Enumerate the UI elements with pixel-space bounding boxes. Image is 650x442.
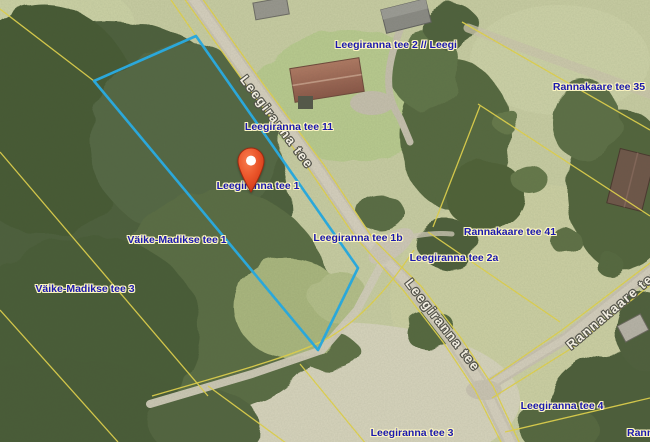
parcel-label-rannakaare-tee-35: Rannakaare tee 35	[553, 82, 645, 93]
parcel-label-vaike-madikse-tee-3: Väike-Madikse tee 3	[35, 284, 134, 295]
aerial-imagery	[0, 0, 650, 442]
parcel-label-rannakaare-clipped: Rannakaare tee	[627, 428, 650, 439]
parcel-label-leegiranna-tee-4: Leegiranna tee 4	[521, 401, 604, 412]
parcel-label-leegiranna-tee-11: Leegiranna tee 11	[245, 122, 333, 133]
parcel-label-rannakaare-tee-41: Rannakaare tee 41	[464, 227, 556, 238]
parcel-label-leegiranna-tee-3: Leegiranna tee 3	[371, 428, 454, 439]
map-pin-icon[interactable]	[236, 147, 266, 193]
parcel-label-leegiranna-tee-1b: Leegiranna tee 1b	[313, 233, 402, 244]
photo-grain-overlay	[0, 0, 650, 442]
map-viewport[interactable]: Leegiranna tee Leegiranna tee Rannakaare…	[0, 0, 650, 442]
parcel-label-leegiranna-tee-2a: Leegiranna tee 2a	[410, 253, 499, 264]
parcel-label-leegiranna-tee-2: Leegiranna tee 2 // Leegi	[335, 40, 457, 51]
parcel-label-vaike-madikse-tee-1: Väike-Madikse tee 1	[127, 235, 226, 246]
